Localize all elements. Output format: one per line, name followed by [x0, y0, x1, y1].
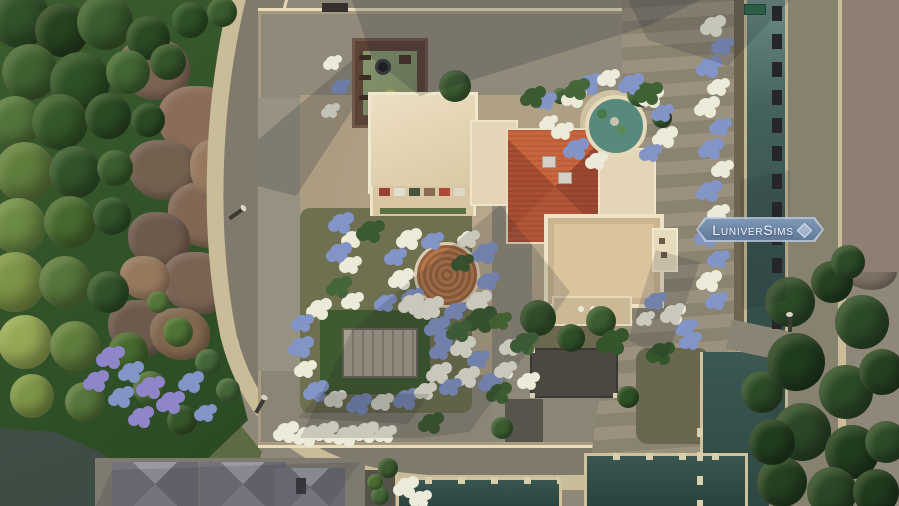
roof-dormer — [542, 156, 556, 168]
market-stall[interactable] — [454, 188, 465, 196]
tree — [85, 93, 131, 139]
canal-post — [772, 34, 782, 49]
patio-post — [530, 348, 535, 353]
tree — [97, 150, 133, 186]
dark-patio[interactable] — [530, 348, 618, 398]
tree — [0, 315, 52, 369]
tree — [831, 245, 865, 279]
flower-cluster — [493, 313, 507, 327]
flower-cluster — [392, 270, 408, 286]
flower-cluster — [709, 293, 723, 307]
tree — [557, 324, 585, 352]
flower-cluster — [425, 233, 439, 247]
canal-pool-east[interactable] — [584, 453, 748, 506]
flower-cluster — [711, 251, 725, 265]
flower-cluster — [402, 295, 418, 311]
tree — [65, 382, 105, 422]
name-tag-label: LuniverSims — [712, 222, 808, 238]
tree — [10, 374, 54, 418]
flower-cluster — [350, 395, 366, 411]
flower-cluster — [422, 414, 438, 430]
pyramid-roof — [200, 462, 286, 506]
canal-post — [772, 118, 782, 133]
flower-cluster — [343, 257, 357, 271]
flower-cluster — [345, 231, 359, 245]
tree — [216, 378, 240, 402]
tree — [2, 44, 58, 100]
market-stall[interactable] — [379, 188, 390, 196]
flower-cluster — [700, 182, 716, 198]
flower-cluster — [450, 322, 466, 338]
flower-cluster — [622, 75, 638, 91]
paved-edge-left — [258, 98, 304, 371]
pond-plant — [597, 109, 607, 119]
flower-cluster — [470, 292, 486, 308]
canal-post — [772, 90, 782, 105]
tree — [131, 103, 165, 137]
flower-cluster — [470, 308, 490, 328]
flower-cluster — [711, 205, 725, 219]
canal-post — [697, 476, 703, 485]
market-stall[interactable] — [409, 188, 420, 196]
tree — [367, 474, 383, 490]
flower-cluster — [345, 293, 359, 307]
planter-box — [359, 55, 371, 60]
balcony-furniture — [659, 238, 665, 244]
flower-cluster — [112, 388, 128, 404]
canal-post — [772, 62, 782, 77]
tree — [147, 291, 169, 313]
flower-cluster — [357, 423, 373, 439]
flower-cluster — [498, 362, 512, 376]
street-bench[interactable] — [744, 4, 766, 15]
flower-cluster — [490, 384, 506, 400]
flower-cluster — [643, 145, 657, 159]
flower-cluster — [378, 295, 392, 309]
flower-cluster — [448, 303, 462, 317]
flower-cluster — [330, 244, 346, 260]
flower-cluster — [337, 427, 353, 443]
lamppost — [788, 316, 792, 332]
villa-south-wing-roof[interactable] — [544, 214, 664, 308]
flower-cluster — [476, 244, 492, 260]
flower-cluster — [481, 273, 495, 287]
canal-post — [772, 174, 782, 189]
flower-cluster — [433, 343, 447, 357]
terrace-planter — [380, 208, 466, 214]
flower-cluster — [430, 364, 446, 380]
canal-post — [772, 258, 782, 273]
market-stall[interactable] — [394, 188, 405, 196]
flower-cluster — [713, 119, 727, 133]
flower-cluster — [715, 161, 729, 175]
terrace-table — [578, 306, 584, 312]
flower-cluster — [602, 330, 622, 350]
roof-dormer — [558, 172, 572, 184]
tree — [835, 295, 889, 349]
flower-cluster — [417, 303, 431, 317]
tree — [87, 271, 129, 313]
flower-cluster — [334, 80, 346, 92]
flower-cluster — [655, 105, 669, 119]
tree — [520, 300, 556, 336]
flower-cluster — [461, 231, 475, 245]
flower-cluster — [388, 249, 402, 263]
tree — [50, 321, 100, 371]
flower-cluster — [317, 423, 333, 439]
planter-box — [359, 75, 371, 80]
tree — [32, 94, 88, 150]
flower-cluster — [182, 373, 198, 389]
pyramid-roof — [275, 468, 345, 506]
tree — [617, 386, 639, 408]
tree — [378, 458, 398, 478]
flower-cluster — [332, 214, 348, 230]
flower-cluster — [330, 278, 346, 294]
flower-cluster — [683, 333, 697, 347]
flower-cluster — [295, 315, 309, 329]
tree — [49, 146, 101, 198]
flower-cluster — [397, 478, 413, 494]
flower-cluster — [361, 221, 379, 239]
flower-cluster — [328, 391, 342, 405]
flower-cluster — [555, 123, 569, 137]
flower-cluster — [310, 300, 326, 316]
flower-cluster — [679, 320, 693, 334]
flower-cluster — [651, 343, 669, 361]
patio-post — [530, 393, 535, 398]
tree — [491, 417, 513, 439]
flower-cluster — [413, 491, 427, 505]
canal-post — [772, 202, 782, 217]
flower-cluster — [307, 382, 323, 398]
flower-cluster — [524, 88, 540, 104]
flower-cluster — [521, 373, 535, 387]
flower-cluster — [542, 116, 554, 128]
market-terrace[interactable] — [370, 186, 476, 216]
canal-post — [772, 6, 782, 21]
neighbor-building — [95, 458, 365, 506]
east-cliff-base — [842, 0, 899, 272]
tree — [163, 317, 193, 347]
flower-cluster — [122, 363, 138, 379]
canal-post — [772, 146, 782, 161]
tree — [439, 70, 471, 102]
flower-cluster — [198, 405, 212, 419]
market-stall[interactable] — [424, 188, 435, 196]
flower-cluster — [458, 368, 474, 384]
pyramid-roof — [112, 462, 198, 506]
rooftop-crate — [399, 55, 411, 64]
flower-cluster — [132, 408, 148, 424]
canal-post — [697, 428, 703, 437]
flower-cluster — [400, 230, 416, 246]
tree — [767, 333, 825, 391]
flower-cluster — [101, 347, 119, 365]
flower-cluster — [418, 383, 432, 397]
tree — [172, 2, 208, 38]
canal-post — [697, 500, 703, 506]
villa-west-wing-roof[interactable] — [368, 92, 478, 194]
flower-cluster — [568, 80, 584, 96]
tree — [93, 197, 131, 235]
chimney — [296, 478, 306, 494]
flower-cluster — [87, 372, 103, 388]
flower-cluster — [443, 379, 457, 393]
fountain-ornament — [610, 117, 619, 126]
flower-cluster — [378, 426, 392, 440]
tree — [859, 349, 899, 395]
tree — [865, 421, 899, 463]
flower-cluster — [277, 423, 293, 439]
flower-cluster — [471, 351, 485, 365]
pergola-slats — [342, 328, 418, 378]
luniversims-name-tag[interactable]: LuniverSims — [696, 216, 824, 243]
east-balcony[interactable] — [652, 228, 678, 272]
balcony-furniture — [661, 252, 667, 258]
market-stall[interactable] — [439, 188, 450, 196]
flower-cluster — [141, 377, 159, 395]
flower-cluster — [375, 394, 389, 408]
flower-cluster — [698, 98, 714, 114]
tree — [749, 419, 795, 465]
flower-cluster — [656, 128, 672, 144]
villa-east-annex-roof — [598, 148, 656, 220]
flower-cluster — [639, 312, 651, 324]
flower-cluster — [324, 104, 336, 116]
tree — [106, 50, 150, 94]
flower-cluster — [639, 83, 657, 101]
flower-cluster — [711, 79, 725, 93]
flower-cluster — [298, 361, 312, 375]
flower-cluster — [704, 17, 720, 33]
flower-cluster — [589, 153, 603, 167]
flower-cluster — [454, 338, 470, 354]
sims4-topdown-lot-view: LuniverSims — [0, 0, 899, 506]
flower-cluster — [648, 293, 662, 307]
flower-cluster — [700, 272, 716, 288]
tree — [757, 457, 807, 506]
tree — [44, 196, 96, 248]
vine-pergola[interactable] — [320, 310, 430, 394]
flower-cluster — [397, 390, 413, 406]
flower-cluster — [567, 140, 583, 156]
flower-cluster — [700, 58, 716, 74]
tree — [39, 256, 91, 308]
flower-cluster — [292, 338, 308, 354]
flower-cluster — [297, 427, 313, 443]
rooftop-hot-tub[interactable] — [375, 59, 391, 75]
flower-cluster — [515, 333, 533, 351]
flower-cluster — [601, 70, 615, 84]
tree — [195, 349, 221, 375]
flower-cluster — [161, 392, 179, 410]
flower-cluster — [538, 93, 552, 107]
flower-cluster — [455, 255, 469, 269]
flower-cluster — [715, 38, 729, 52]
canal-post — [697, 452, 703, 461]
flower-cluster — [702, 140, 718, 156]
flower-cluster — [664, 305, 680, 321]
pond-plant — [617, 125, 626, 134]
tree — [150, 44, 186, 80]
flower-cluster — [326, 56, 338, 68]
street-crates — [322, 3, 348, 12]
